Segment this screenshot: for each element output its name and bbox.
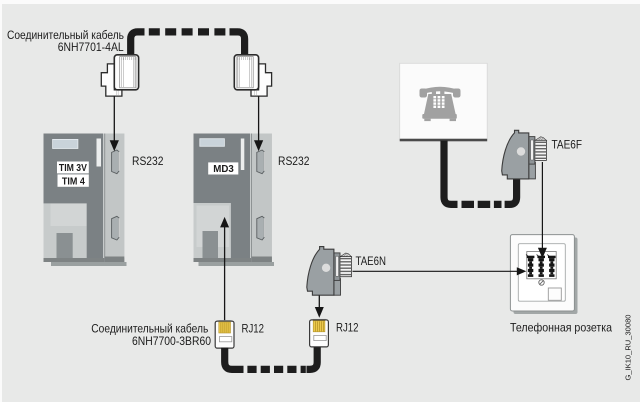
svg-text:RJ12: RJ12 <box>336 321 359 335</box>
svg-text:TAE6N: TAE6N <box>356 254 387 268</box>
svg-text:MD3: MD3 <box>213 163 234 175</box>
svg-text:Телефонная розетка: Телефонная розетка <box>510 321 612 335</box>
svg-text:RS232: RS232 <box>278 154 310 168</box>
svg-text:6NH7700-3BR60: 6NH7700-3BR60 <box>132 334 211 348</box>
svg-text:TIM 3V: TIM 3V <box>59 162 87 174</box>
svg-text:TAE6F: TAE6F <box>552 138 583 152</box>
svg-text:TIM 4: TIM 4 <box>62 175 85 187</box>
svg-text:G_IK10_RU_30080: G_IK10_RU_30080 <box>624 315 633 381</box>
svg-text:RS232: RS232 <box>132 154 164 168</box>
svg-text:6NH7701-4AL: 6NH7701-4AL <box>58 40 124 54</box>
svg-text:RJ12: RJ12 <box>242 321 265 335</box>
